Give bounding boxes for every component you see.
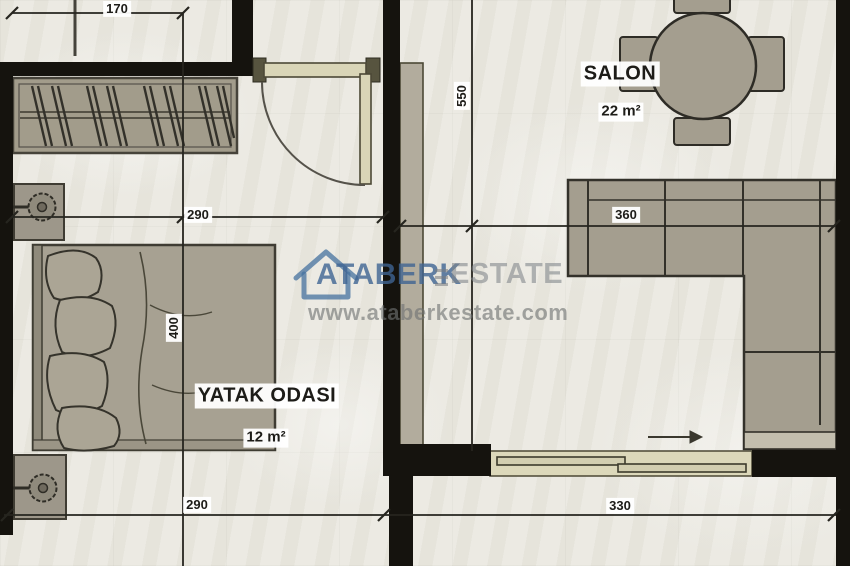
dim-label-550: 550 bbox=[454, 82, 470, 110]
wall-top bbox=[0, 62, 253, 76]
room-label-salon: SALON bbox=[581, 62, 660, 87]
wall-hall-stub bbox=[383, 444, 491, 476]
nightstand-lamp-icon bbox=[12, 455, 66, 519]
wall-bottom-right-stub bbox=[752, 450, 850, 477]
hall-cabinet-icon bbox=[400, 63, 423, 448]
nightstand-lamp-icon bbox=[12, 184, 64, 240]
direction-arrow-icon bbox=[648, 431, 702, 443]
wall-left bbox=[0, 62, 13, 535]
dim-label-290-bottom: 290 bbox=[183, 497, 211, 513]
corner-sofa-icon bbox=[568, 180, 836, 449]
wall-top-corner bbox=[232, 0, 253, 76]
dim-label-330: 330 bbox=[606, 498, 634, 514]
floor-plan: 170 290 400 550 360 290 330 SALON 22 m² … bbox=[0, 0, 850, 566]
round-dining-table-icon bbox=[650, 13, 756, 119]
room-area-bedroom: 12 m² bbox=[243, 429, 288, 448]
room-area-salon: 22 m² bbox=[598, 103, 643, 122]
sliding-door-icon bbox=[490, 451, 752, 476]
dim-label-170: 170 bbox=[103, 1, 131, 17]
wardrobe-icon bbox=[13, 78, 237, 153]
wall-right bbox=[836, 0, 850, 566]
double-bed-icon bbox=[33, 245, 275, 451]
dim-label-400: 400 bbox=[166, 314, 182, 342]
dim-label-290-top: 290 bbox=[184, 207, 212, 223]
hinged-door-icon bbox=[253, 58, 380, 185]
wall-center bbox=[383, 0, 400, 452]
wall-bottom bbox=[389, 476, 413, 566]
floor-plan-drawing bbox=[0, 0, 850, 566]
room-label-bedroom: YATAK ODASI bbox=[195, 384, 339, 409]
dim-label-360: 360 bbox=[612, 207, 640, 223]
